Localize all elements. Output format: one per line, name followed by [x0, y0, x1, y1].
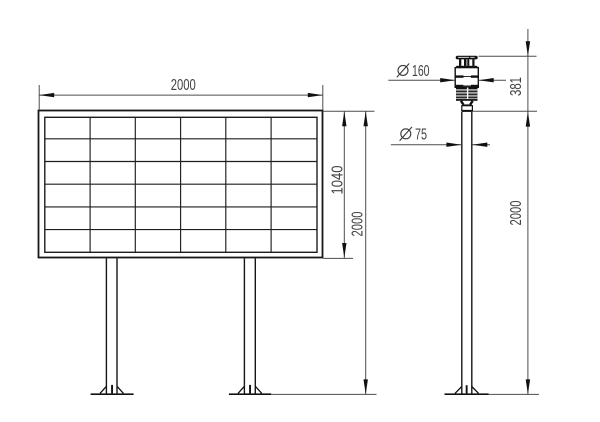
svg-text:381: 381 — [508, 77, 525, 96]
svg-text:2000: 2000 — [171, 77, 196, 94]
svg-text:2000: 2000 — [349, 211, 366, 236]
svg-text:75: 75 — [415, 127, 427, 144]
svg-text:2000: 2000 — [508, 200, 525, 225]
svg-text:160: 160 — [412, 63, 430, 80]
svg-text:1040: 1040 — [329, 165, 346, 194]
